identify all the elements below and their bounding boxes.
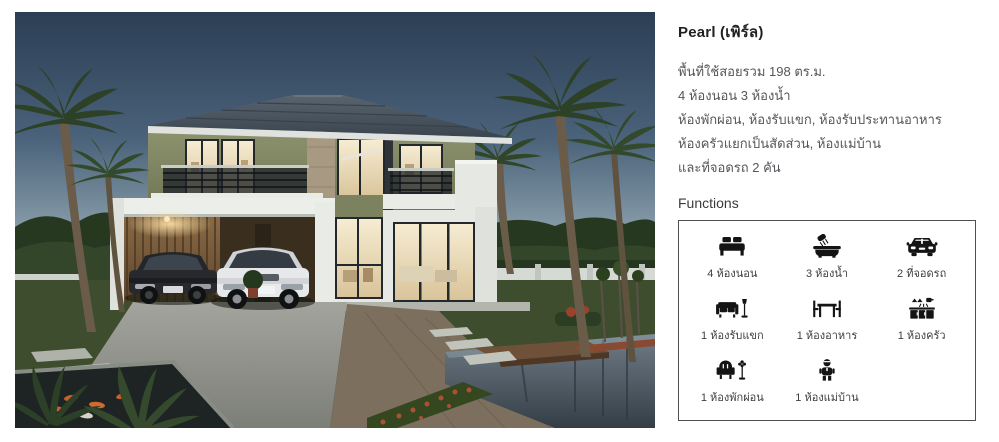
kitchen-icon xyxy=(905,296,939,320)
house-rendering-art xyxy=(15,12,655,428)
function-item-bathrooms: 3 ห้องน้ำ xyxy=(780,234,875,287)
listing-details-panel: Pearl (เพิร์ล) พื้นที่ใช้สอยรวม 198 ตร.ม… xyxy=(678,10,978,421)
function-item-bedrooms: 4 ห้องนอน xyxy=(685,234,780,287)
function-label: 4 ห้องนอน xyxy=(707,264,757,282)
function-item-maid-room: 1 ห้องแม่บ้าน xyxy=(780,358,875,411)
function-label: 1 ห้องครัว xyxy=(898,326,946,344)
function-label: 1 ห้องอาหาร xyxy=(797,326,858,344)
function-item-parking: 2 ที่จอดรถ xyxy=(874,234,969,287)
listing-title: Pearl (เพิร์ล) xyxy=(678,20,978,44)
dining-table-icon xyxy=(810,296,844,320)
function-label: 1 ห้องรับแขก xyxy=(701,326,764,344)
listing-description-line: 4 ห้องนอน 3 ห้องน้ำ xyxy=(678,84,978,108)
armchair-icon xyxy=(715,358,749,382)
sofa-icon xyxy=(715,296,749,320)
functions-heading: Functions xyxy=(678,195,978,211)
function-label: 1 ห้องพักผ่อน xyxy=(701,388,764,406)
lower-floor xyxy=(335,195,497,305)
listing-description-line: และที่จอดรถ 2 คัน xyxy=(678,156,978,180)
function-item-kitchen: 1 ห้องครัว xyxy=(874,296,969,349)
maid-icon xyxy=(810,358,844,382)
function-label: 1 ห้องแม่บ้าน xyxy=(795,388,858,406)
functions-box: 4 ห้องนอน 3 ห้องน้ำ xyxy=(678,220,976,421)
listing-description-line: พื้นที่ใช้สอยรวม 198 ตร.ม. xyxy=(678,60,978,84)
page: Pearl (เพิร์ล) พื้นที่ใช้สอยรวม 198 ตร.ม… xyxy=(0,0,999,442)
function-item-living-room: 1 ห้องรับแขก xyxy=(685,296,780,349)
listing-description-line: ห้องครัวแยกเป็นสัดส่วน, ห้องแม่บ้าน xyxy=(678,132,978,156)
car-icon xyxy=(905,234,939,258)
bath-icon xyxy=(810,234,844,258)
house-rendering xyxy=(15,12,655,428)
function-item-dining-room: 1 ห้องอาหาร xyxy=(780,296,875,349)
function-label: 2 ที่จอดรถ xyxy=(897,264,946,282)
function-item-family-room: 1 ห้องพักผ่อน xyxy=(685,358,780,411)
function-label: 3 ห้องน้ำ xyxy=(806,264,848,282)
bed-icon xyxy=(715,234,749,258)
listing-description-line: ห้องพักผ่อน, ห้องรับแขก, ห้องรับประทานอา… xyxy=(678,108,978,132)
